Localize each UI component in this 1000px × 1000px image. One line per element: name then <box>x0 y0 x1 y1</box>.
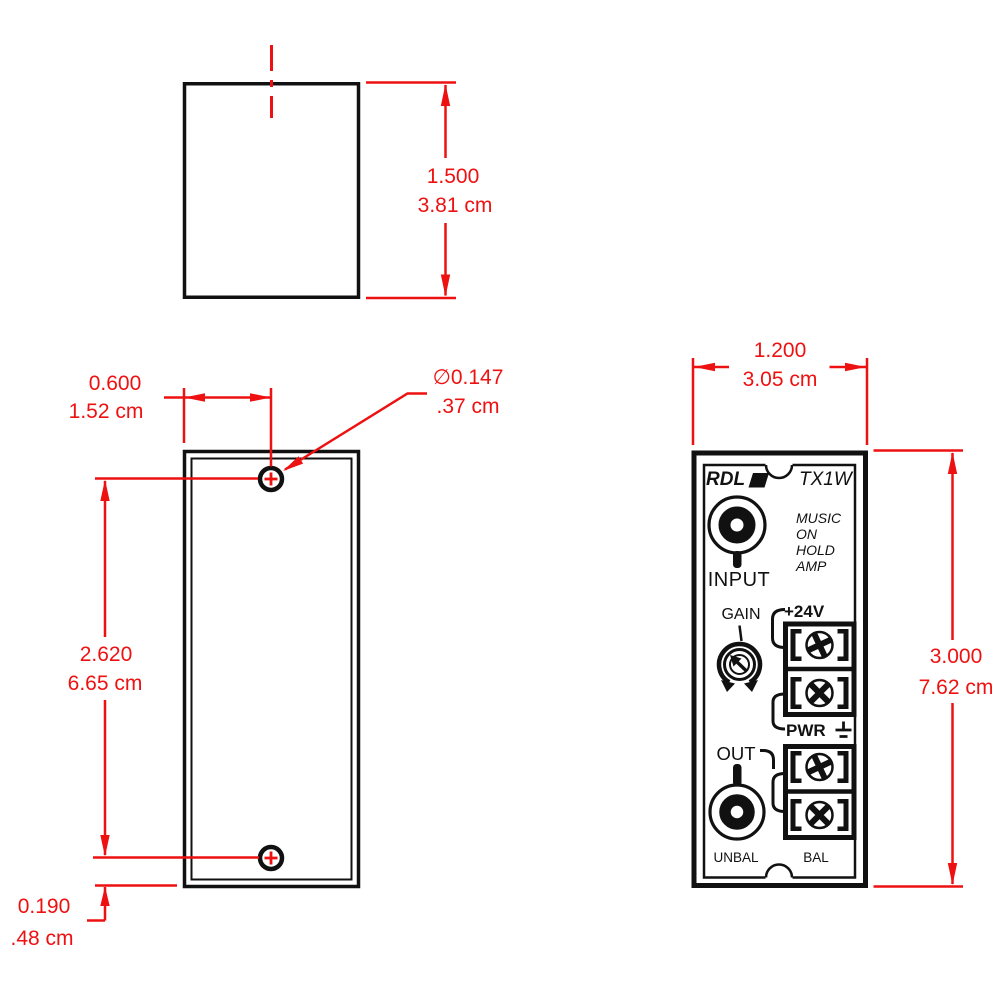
arrow-right-icon <box>250 393 271 402</box>
mounting-hole-top <box>260 468 282 490</box>
arrow-left-icon <box>694 363 715 372</box>
unbalanced-label: UNBAL <box>713 851 758 865</box>
description-line: ON <box>796 527 817 541</box>
front-panel-outline <box>185 452 359 887</box>
arrow-right-icon <box>845 363 866 372</box>
arrow-down-icon <box>100 835 109 857</box>
input-label: INPUT <box>708 570 771 590</box>
dimension-drawing: 1.500 3.81 cm 0.600 1.52 cm ∅0.147 .37 c… <box>0 0 1000 1000</box>
dim-panel-height-cm: 7.62 cm <box>919 677 994 698</box>
description-line: MUSIC <box>796 511 841 525</box>
dim-hole-bottom-in: 0.190 <box>18 896 71 917</box>
supply-label: +24V <box>784 603 824 620</box>
dim-hole-diameter-in: ∅0.147 <box>433 367 504 388</box>
terminal-block-power <box>783 624 856 715</box>
drawing-canvas <box>0 0 1000 1000</box>
arrow-up-icon <box>441 84 450 106</box>
power-label: PWR <box>786 722 826 739</box>
dim-hole-bottom-cm: .48 cm <box>10 928 73 949</box>
dim-side-height-in: 1.500 <box>427 166 480 187</box>
arrow-up-icon <box>948 452 957 474</box>
dim-hole-spacing-cm: 6.65 cm <box>68 673 143 694</box>
dim-side-height <box>366 83 456 299</box>
dim-panel-width-cm: 3.05 cm <box>743 369 818 390</box>
arrow-up-icon <box>100 887 109 907</box>
dim-panel-height-in: 3.000 <box>930 646 983 667</box>
arrow-down-icon <box>441 275 450 297</box>
arrow-down-icon <box>948 863 957 885</box>
dim-hole-spacing-in: 2.620 <box>80 644 133 665</box>
description-line: HOLD <box>796 543 835 557</box>
model-label: TX1W <box>799 470 852 489</box>
dim-panel-height <box>874 451 964 887</box>
brand-label: RDL <box>706 470 745 489</box>
description-line: AMP <box>796 559 826 573</box>
dim-side-height-cm: 3.81 cm <box>418 195 493 216</box>
dim-hole-offset-cm: 1.52 cm <box>69 401 144 422</box>
arrow-up-icon <box>100 480 109 502</box>
mounting-hole-bottom <box>260 847 282 869</box>
dim-hole-bottom-offset <box>87 886 177 921</box>
output-label: OUT <box>716 745 755 764</box>
balanced-label: BAL <box>803 851 829 865</box>
dim-panel-width-in: 1.200 <box>754 340 807 361</box>
arrow-left-icon <box>184 393 205 402</box>
dim-hole-offset-in: 0.600 <box>89 373 142 394</box>
dim-hole-diameter-cm: .37 cm <box>436 396 499 417</box>
gain-label: GAIN <box>721 607 760 623</box>
terminal-block-output <box>783 747 856 838</box>
